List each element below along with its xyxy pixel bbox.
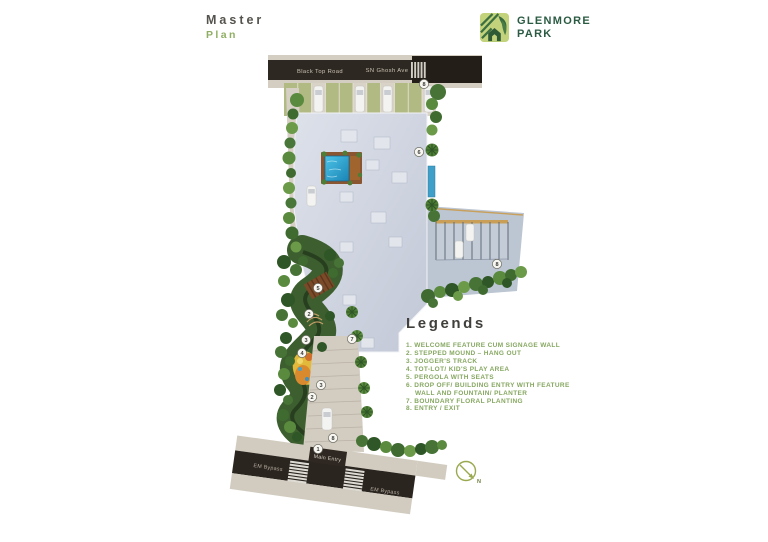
svg-text:8: 8 [331, 436, 334, 442]
parking-strip-top [284, 83, 436, 116]
road-label-black-top-road: Black Top Road [297, 69, 343, 75]
map-marker-mound-south: 2 [307, 392, 316, 401]
legend-item: 8. ENTRY / EXIT [406, 405, 588, 413]
map-marker-boundary-planting: 7 [347, 334, 356, 343]
svg-text:7: 7 [350, 337, 353, 343]
legend-item: 2. STEPPED MOUND – HANG OUT [406, 350, 588, 358]
svg-text:5: 5 [316, 286, 319, 292]
legend-panel: Legends 1. WELCOME FEATURE CUM SIGNAGE W… [406, 315, 588, 413]
car-on-driveway [322, 408, 332, 430]
map-marker-entry-top: 8 [419, 79, 428, 88]
swimming-pool [325, 156, 349, 181]
car-west-lane [307, 186, 316, 206]
map-marker-dropoff: 6 [414, 147, 423, 156]
svg-text:8: 8 [422, 82, 425, 88]
north-label: N [477, 479, 481, 485]
legend-item: 6. DROP OFF/ BUILDING ENTRY WITH FEATURE… [406, 382, 588, 397]
legend-item: 7. BOUNDARY FLORAL PLANTING [406, 398, 588, 406]
north-indicator: N [457, 462, 482, 486]
legend-list: 1. WELCOME FEATURE CUM SIGNAGE WALL 2. S… [406, 342, 588, 413]
legend-item: 4. TOT-LOT/ KID'S PLAY AREA [406, 366, 588, 374]
pool-deck [321, 151, 362, 186]
map-marker-pergola: 5 [313, 283, 322, 292]
legend-item: 1. WELCOME FEATURE CUM SIGNAGE WALL [406, 342, 588, 350]
legend-item: 5. PERGOLA WITH SEATS [406, 374, 588, 382]
legend-title: Legends [406, 315, 588, 332]
svg-text:8: 8 [495, 262, 498, 268]
map-marker-tot-lot: 4 [297, 348, 306, 357]
svg-text:3: 3 [304, 338, 307, 344]
boundary-trees-east [426, 84, 447, 222]
svg-text:6: 6 [417, 150, 420, 156]
svg-text:1: 1 [316, 447, 319, 453]
map-marker-stepped-mound: 2 [304, 309, 313, 318]
master-plan-page: Master Plan GLENMORE PARK [0, 0, 768, 542]
map-marker-entry-main: 8 [328, 433, 337, 442]
map-marker-track-south: 3 [316, 380, 325, 389]
svg-text:2: 2 [307, 312, 310, 318]
legend-item: 3. JOGGER'S TRACK [406, 358, 588, 366]
road-label-sn-ghosh-ave: SN Ghosh Ave [366, 68, 409, 74]
map-marker-entry-east: 8 [492, 259, 501, 268]
svg-text:3: 3 [319, 383, 322, 389]
site-plan: Black Top Road SN Ghosh Ave [0, 0, 768, 542]
svg-text:2: 2 [310, 395, 313, 401]
map-marker-joggers-track: 3 [301, 335, 310, 344]
fountain-strip [428, 166, 435, 197]
gate-trees [356, 435, 447, 457]
map-marker-welcome-wall: 1 [313, 444, 322, 453]
